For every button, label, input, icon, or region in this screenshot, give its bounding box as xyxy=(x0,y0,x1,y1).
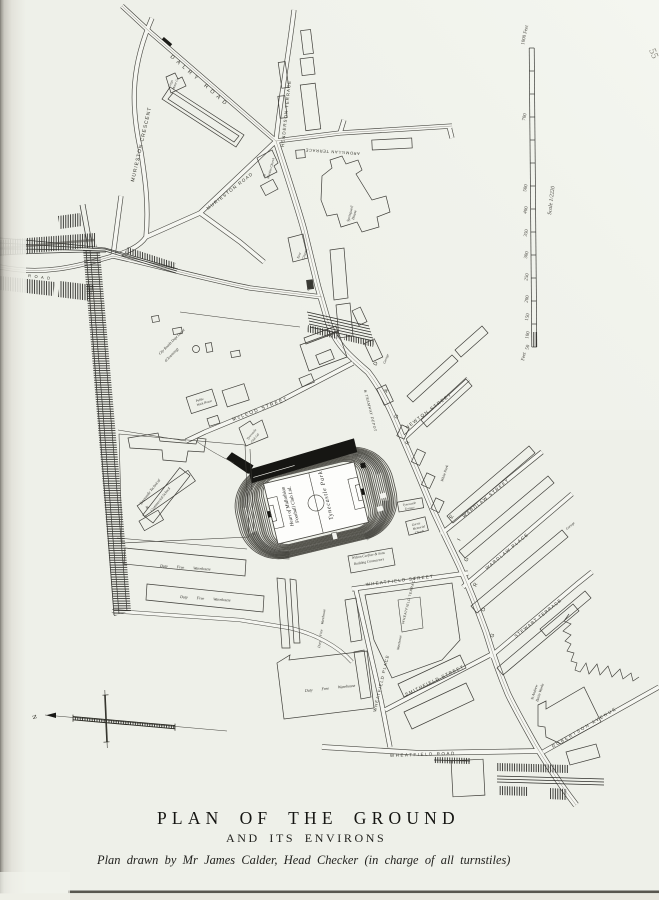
svg-text:PLAN OF THE GROUND: PLAN OF THE GROUND xyxy=(157,808,460,828)
svg-text:AND ITS ENVIRONS: AND ITS ENVIRONS xyxy=(226,831,386,845)
svg-text:Plan drawn by Mr James Calder,: Plan drawn by Mr James Calder, Head Chec… xyxy=(96,853,510,867)
